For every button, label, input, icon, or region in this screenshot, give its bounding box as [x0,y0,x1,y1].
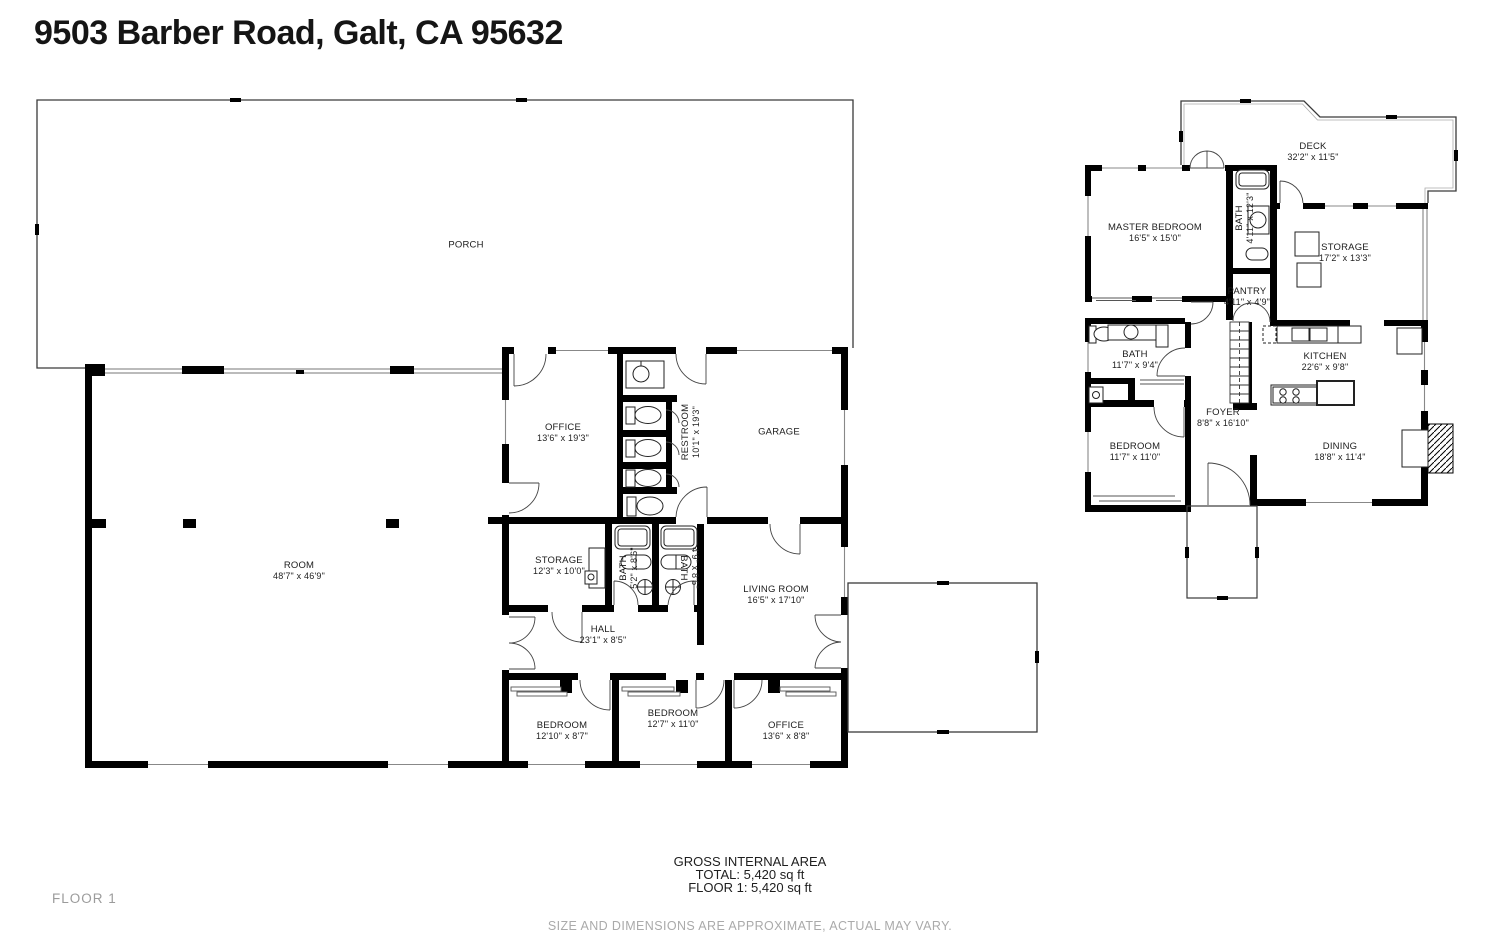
page-title: 9503 Barber Road, Galt, CA 95632 [34,14,563,53]
area-summary: GROSS INTERNAL AREA TOTAL: 5,420 sq ft F… [674,856,827,894]
room-label-storage-f2: STORAGE 17'2" x 13'3" [1319,242,1371,264]
room-label-restroom: RESTROOM 10'1" x 19'3" [680,404,702,461]
room-label-bath-main: BATH 11'7" x 9'4" [1112,349,1158,371]
room-label-bath-2: BATH 4'9" x 8'6" [678,547,700,589]
room-label-bedroom-2: BEDROOM 12'7" x 11'0" [647,708,698,730]
room-label-hall: HALL 23'1" x 8'5" [580,624,627,646]
patio-ticks [937,581,1039,734]
room-label-dining: DINING 18'8" x 11'4" [1314,441,1365,463]
storage-screen-wall [1423,203,1427,320]
room-label-garage: GARAGE [758,427,800,438]
room-label-office-upper: OFFICE 13'6" x 19'3" [537,422,589,444]
floor1-closet-doors [511,687,836,696]
room-label-living-room: LIVING ROOM 16'5" x 17'10" [743,584,809,606]
stairs [1230,322,1249,403]
floor1-wall-openings [148,347,848,768]
floorplan-page: 9503 Barber Road, Galt, CA 95632 PORCH O… [0,0,1500,937]
floor-number-label: FLOOR 1 [52,891,117,906]
room-label-bedroom-1: BEDROOM 12'10" x 8'7" [536,720,588,742]
fireplace [1402,424,1453,473]
room-label-master-bedroom: MASTER BEDROOM 16'5" x 15'0" [1108,222,1202,244]
room-label-room: ROOM 48'7" x 46'9" [273,560,325,582]
room-label-bath-1: BATH 5'2" x 8'6" [618,547,640,589]
room-label-bath-master: BATH 4'11" x 12'3" [1234,192,1256,243]
room-label-pantry: PANTRY 4'11" x 4'9" [1224,286,1270,308]
room-label-storage-f1: STORAGE 12'3" x 10'0" [533,555,585,577]
porch-ticks [35,98,527,235]
floorplan-canvas [0,0,1500,937]
room-label-bedroom-f2: BEDROOM 11'7" x 11'0" [1110,441,1161,463]
entry-porch-outline [1187,506,1257,598]
room-label-office-lower: OFFICE 13'6" x 8'8" [763,720,810,742]
area-summary-floor1: FLOOR 1: 5,420 sq ft [674,882,827,895]
entry-porch-ticks [1185,547,1259,600]
disclaimer-text: SIZE AND DIMENSIONS ARE APPROXIMATE, ACT… [548,919,952,933]
room-label-deck: DECK 32'2" x 11'5" [1287,141,1338,163]
room-label-foyer: FOYER 8'8" x 16'10" [1197,407,1249,429]
room-label-porch: PORCH [448,240,483,251]
room-label-kitchen: KITCHEN 22'6" x 9'8" [1302,351,1349,373]
porch-outline [37,100,853,368]
patio-outline [848,583,1037,732]
floor1-window-lines [148,351,845,765]
